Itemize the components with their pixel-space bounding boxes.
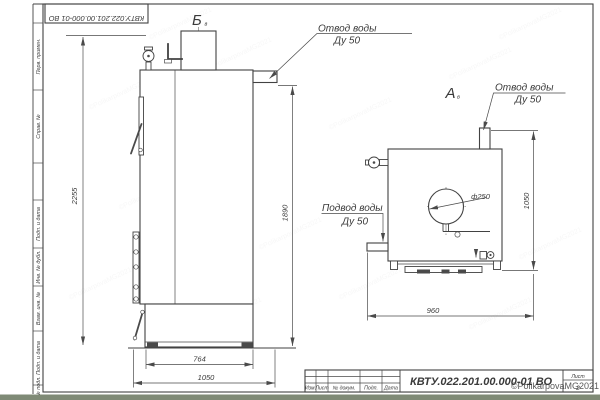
feet-and-grate: [391, 261, 501, 274]
dim-764-label: 764: [193, 355, 206, 364]
dim-1050-b-label: 1050: [198, 373, 216, 382]
margin-cell-podp-data-2: Подп. и дата: [36, 341, 42, 375]
titleblock-col-podp: Подп.: [364, 386, 378, 392]
watermark-tile: ©PolikarpovaMG2021: [467, 296, 533, 332]
callout-outlet-b: Отвод воды Ду 50: [270, 24, 413, 79]
margin-cell-vzam-inv: Взам. инв. №: [36, 292, 42, 326]
callout-outlet-b-line2: Ду 50: [333, 36, 360, 47]
margin-cell-podp-data-1: Подп. и дата: [36, 207, 42, 241]
dim-1050-a-label: 1050: [522, 192, 531, 210]
titleblock-col-list: Лист: [314, 386, 329, 392]
watermark-signature: ©PolikarpovaMG2021: [511, 381, 599, 391]
view-b-label-subscript: в: [205, 22, 208, 28]
titleblock-sheet-label: Лист: [570, 374, 585, 380]
view-b: Б в: [66, 12, 412, 388]
callout-outlet-a-line1: Отвод воды: [495, 83, 554, 94]
margin-cell-sprav-n: Справ. №: [36, 114, 42, 139]
view-b-label: Б: [192, 12, 202, 29]
margin-cell-perv-primen: Перв. примен.: [36, 39, 42, 75]
watermark-tile: ©PolikarpovaMG2021: [327, 96, 393, 132]
watermark-tile: ©PolikarpovaMG2021: [447, 46, 513, 82]
drawing-sheet: ©PolikarpovaMG2021 ©PolikarpovaMG2021 ©P…: [0, 0, 600, 400]
watermark-tile: ©PolikarpovaMG2021: [497, 6, 563, 42]
inlet-pipe-stub: [367, 243, 388, 251]
rotated-designation-box: КВТУ.022.201.00.000-01 ВО: [45, 4, 148, 23]
dim-1890: 1890: [278, 86, 297, 347]
drawing-canvas: ©PolikarpovaMG2021 ©PolikarpovaMG2021 ©P…: [0, 0, 600, 400]
bottom-edge-bar: [0, 395, 600, 400]
view-a-label-subscript: в: [457, 95, 460, 101]
outlet-pipe-stub-a: [480, 128, 491, 149]
callout-outlet-a: Отвод воды Ду 50: [484, 83, 566, 131]
dim-2255-label: 2255: [70, 187, 79, 206]
dim-diameter-label: ф250: [471, 192, 491, 201]
watermark-tile: ©PolikarpovaMG2021: [257, 216, 323, 252]
watermark-tile: ©PolikarpovaMG2021: [67, 266, 133, 302]
dim-1890-label: 1890: [281, 204, 290, 222]
view-a-label: А: [445, 85, 456, 102]
watermark-tile: ©PolikarpovaMG2021: [207, 36, 273, 72]
callout-inlet-line2: Ду 50: [341, 217, 368, 228]
margin-strip: Перв. примен. Справ. № Подп. и дата Инв.…: [33, 23, 43, 400]
callout-inlet-line1: Подвод воды: [322, 203, 383, 214]
callout-outlet-b-line1: Отвод воды: [318, 24, 377, 35]
rotated-designation-text: КВТУ.022.201.00.000-01 ВО: [49, 14, 145, 23]
watermark-tile: ©PolikarpovaMG2021: [337, 266, 403, 302]
safety-valve-icon: [143, 47, 154, 70]
callout-inlet: Подвод воды Ду 50: [322, 203, 384, 242]
dim-764: 764: [146, 350, 253, 370]
callout-outlet-a-line2: Ду 50: [514, 95, 541, 106]
dim-960-label: 960: [427, 306, 440, 315]
side-valve-icon: [366, 157, 389, 168]
boiler-base: [145, 304, 253, 348]
titleblock-col-data: Дата: [383, 386, 398, 392]
elbow-pipe-icon: [165, 44, 183, 63]
outlet-pipe-stub-b: [253, 71, 277, 83]
boiler-body-front: [140, 70, 253, 304]
margin-cell-inv-dubl: Инв. № дубл.: [36, 250, 42, 283]
watermark-tile: ©PolikarpovaMG2021: [517, 226, 583, 262]
chimney-duct: [181, 31, 216, 70]
sheet-frame: [33, 4, 593, 394]
titleblock-col-doc: № докум.: [333, 386, 356, 392]
